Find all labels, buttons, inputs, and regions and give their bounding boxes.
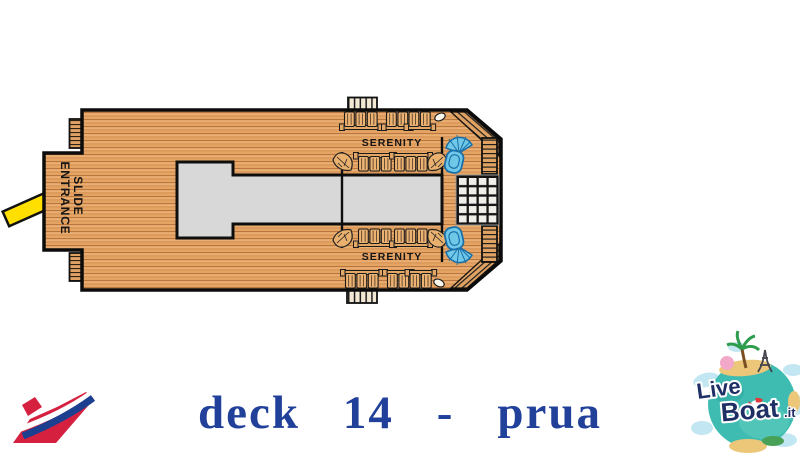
deck-caption: deck 14 - prua [0,386,800,440]
deck-plan-page: SERENITY SERENITY SLIDE ENTRANCE [0,0,800,457]
serenity-label-top: SERENITY [362,137,423,149]
serenity-label-bottom: SERENITY [362,251,423,263]
bow-steps-upper [482,138,497,174]
bow-grid [456,175,500,226]
bow-steps-lower [482,226,497,262]
blossom-tree-icon [720,356,734,370]
bottom-stairs [347,290,377,303]
